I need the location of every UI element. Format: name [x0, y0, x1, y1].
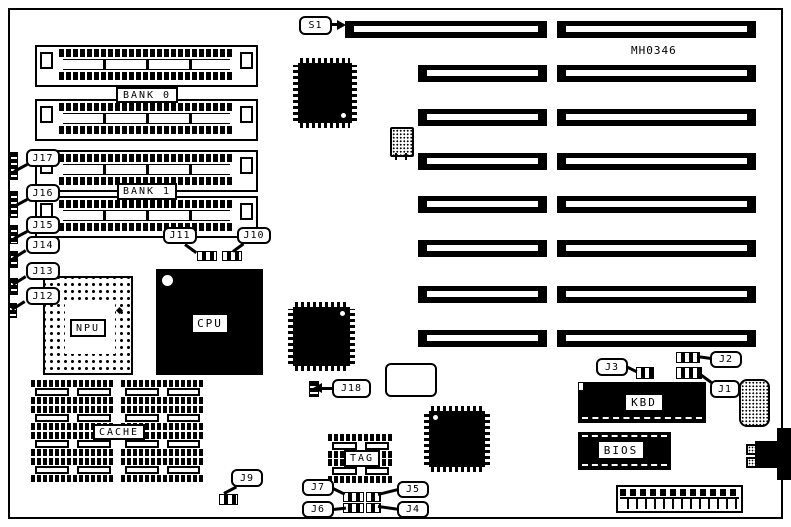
- keyboard-din-connector-body: [755, 441, 779, 468]
- expansion-slot: [557, 330, 756, 347]
- pin-row: [59, 49, 234, 57]
- cache-chip: [31, 380, 115, 404]
- power-sockets-row: [620, 497, 739, 509]
- jumper-j14-label: J14: [26, 236, 60, 254]
- simm-module-2: [35, 99, 258, 141]
- jumper-j13-label: J13: [26, 262, 60, 280]
- jumper-j10: [222, 251, 242, 261]
- jumper-j17: [10, 152, 18, 180]
- bank1-label: BANK 1: [117, 183, 177, 200]
- expansion-slot: [557, 65, 756, 82]
- expansion-slot: [418, 240, 547, 257]
- callout-arrow-icon: [313, 383, 322, 393]
- kbd-label: KBD: [626, 395, 662, 410]
- jumper-j9: [219, 494, 238, 505]
- jumper-j3-label: J3: [596, 358, 628, 376]
- qfp-chip-top: [293, 58, 357, 128]
- pin-row: [59, 154, 234, 162]
- expansion-slot: [418, 65, 547, 82]
- jumper-j2-label: J2: [710, 351, 742, 368]
- pin-row: [59, 72, 234, 80]
- jumper-j3: [636, 367, 654, 379]
- simm-module-1: [35, 45, 258, 87]
- cache-chip: [121, 458, 204, 482]
- qfp-chip-middle: [288, 302, 355, 371]
- simm-chips: [63, 210, 230, 221]
- crystal-oscillator: [390, 127, 414, 157]
- power-pins-row: [620, 489, 739, 496]
- simm-chips: [63, 59, 230, 70]
- keyboard-din-connector: [777, 428, 791, 480]
- din-pin: [746, 457, 757, 468]
- din-pin: [746, 444, 757, 455]
- jumper-j7-label: J7: [302, 479, 334, 496]
- pin1-dot: [433, 415, 438, 420]
- pin1-dot: [162, 275, 173, 286]
- expansion-slot: [418, 330, 547, 347]
- expansion-slot: [557, 196, 756, 213]
- jumper-j16-label: J16: [26, 184, 60, 202]
- orientation-mark: [116, 307, 123, 314]
- jumper-j15-label: J15: [26, 216, 60, 234]
- cache-chip: [121, 380, 204, 404]
- expansion-slot: [418, 109, 547, 126]
- part-number: MH0346: [631, 44, 677, 57]
- expansion-slot: [418, 196, 547, 213]
- jumper-j18-label: J18: [332, 379, 371, 398]
- jumper-j5-label: J5: [397, 481, 429, 498]
- qfp-chip-bottom: [424, 406, 490, 472]
- expansion-slot: [345, 21, 547, 38]
- jumper-j10-label: J10: [237, 227, 271, 244]
- pin1-dot: [340, 311, 345, 316]
- bios-label: BIOS: [599, 442, 643, 458]
- cpu-label: CPU: [193, 315, 227, 332]
- jumper-j11: [197, 251, 217, 261]
- motherboard-diagram: MH0346 BANK 0 BANK 1 S1 J17 J16 J15 J14 …: [0, 0, 791, 527]
- jumper-j4-label: J4: [397, 501, 429, 518]
- expansion-slot: [418, 286, 547, 303]
- pin-row: [59, 223, 234, 231]
- bank0-label: BANK 0: [116, 87, 178, 103]
- jumper-j11-label: J11: [163, 227, 197, 244]
- npu-label: NPU: [70, 319, 106, 337]
- expansion-slot: [557, 286, 756, 303]
- jumper-j17-label: J17: [26, 149, 60, 167]
- power-connector: [616, 485, 743, 513]
- jumper-j1-label: J1: [710, 380, 740, 398]
- pin-row: [59, 103, 234, 111]
- cache-label: CACHE: [93, 424, 145, 440]
- callout-arrow-icon: [337, 20, 346, 30]
- jumper-j7: [343, 492, 364, 502]
- cache-chip: [31, 458, 115, 482]
- empty-socket: [385, 363, 437, 397]
- simm-chips: [63, 164, 230, 175]
- pin1-dot: [341, 113, 346, 118]
- keyboard-pad-connector: [739, 379, 770, 427]
- expansion-slot: [557, 153, 756, 170]
- pin-row: [59, 126, 234, 134]
- jumper-j12-label: J12: [26, 287, 60, 305]
- simm-module-4: [35, 196, 258, 238]
- simm-chips: [63, 113, 230, 124]
- expansion-slot: [418, 153, 547, 170]
- jumper-j6: [343, 503, 364, 513]
- pin-row: [59, 200, 234, 208]
- switch-s1-label: S1: [299, 16, 332, 35]
- jumper-j9-label: J9: [231, 469, 263, 487]
- tag-label: TAG: [344, 450, 380, 467]
- expansion-slot: [557, 21, 756, 38]
- jumper-j6-label: J6: [302, 501, 334, 518]
- expansion-slot: [557, 109, 756, 126]
- expansion-slot: [557, 240, 756, 257]
